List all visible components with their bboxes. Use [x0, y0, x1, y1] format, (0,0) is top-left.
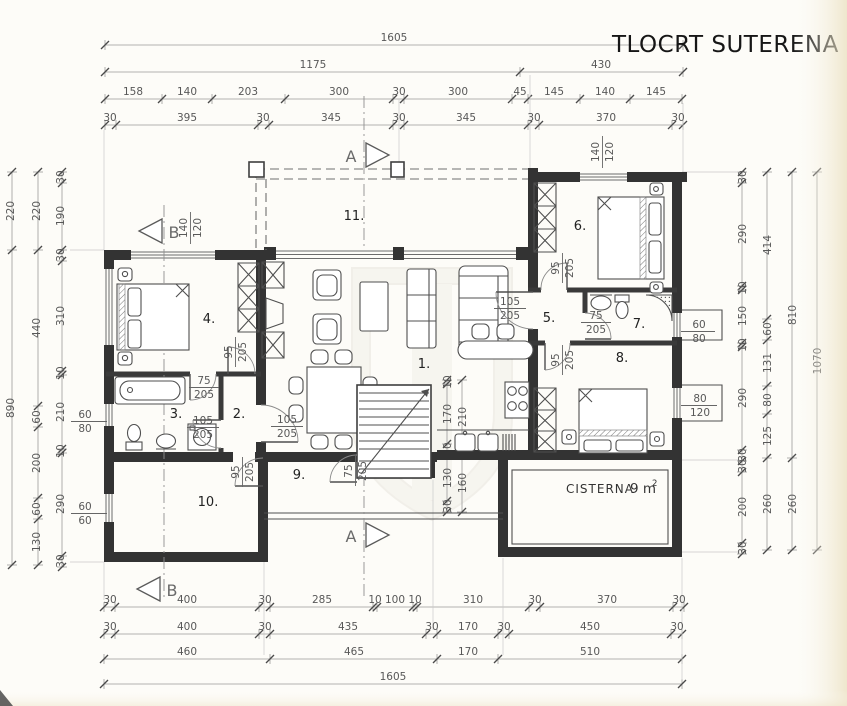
svg-text:400: 400	[177, 621, 197, 633]
svg-text:205: 205	[586, 324, 606, 336]
room-label-6: 6.	[574, 219, 586, 234]
room-label-11: 11.	[344, 209, 365, 224]
svg-text:10: 10	[737, 338, 749, 351]
svg-text:260: 260	[762, 494, 774, 514]
svg-text:10: 10	[408, 594, 421, 606]
svg-text:205: 205	[244, 462, 256, 482]
svg-text:300: 300	[448, 86, 468, 98]
floor-plan-page: 1605 1175 430 158 140 203 300 30 300 45 …	[0, 0, 847, 706]
svg-text:30: 30	[425, 621, 438, 633]
svg-text:30: 30	[737, 170, 749, 183]
svg-text:450: 450	[580, 621, 600, 633]
svg-text:45: 45	[513, 86, 526, 98]
dim-label: 1175	[300, 59, 327, 71]
svg-text:440: 440	[31, 318, 43, 338]
svg-text:370: 370	[597, 594, 617, 606]
svg-text:30: 30	[55, 554, 67, 567]
room-label-1: 1.	[418, 357, 430, 372]
section-a-letter-top: A	[346, 147, 357, 166]
svg-text:170: 170	[458, 646, 478, 658]
bathtub-icon	[115, 377, 185, 404]
svg-text:75: 75	[197, 375, 210, 387]
svg-text:30: 30	[672, 594, 685, 606]
svg-text:60: 60	[78, 409, 91, 421]
svg-text:220: 220	[31, 201, 43, 221]
svg-text:105: 105	[277, 414, 297, 426]
svg-text:205: 205	[277, 428, 297, 440]
svg-text:140: 140	[595, 86, 615, 98]
svg-text:60: 60	[762, 322, 774, 335]
svg-text:30: 30	[258, 594, 271, 606]
svg-text:130: 130	[31, 532, 43, 552]
svg-text:205: 205	[357, 461, 369, 481]
room-label-7: 7.	[633, 317, 645, 332]
section-a-letter-bottom: A	[346, 527, 357, 546]
svg-text:10: 10	[55, 366, 67, 379]
svg-text:125: 125	[762, 426, 774, 446]
svg-text:120: 120	[604, 142, 616, 162]
svg-text:300: 300	[329, 86, 349, 98]
svg-text:160: 160	[457, 473, 469, 493]
room-label-8: 8.	[616, 351, 628, 366]
svg-text:345: 345	[321, 112, 341, 124]
svg-text:30: 30	[392, 112, 405, 124]
svg-text:205: 205	[193, 429, 213, 441]
scan-edge-tint-bottom	[0, 690, 847, 706]
toilet-icon-room7	[615, 295, 629, 319]
svg-text:30: 30	[670, 621, 683, 633]
cisterna-label: CISTERNA 9 m 2	[566, 479, 657, 497]
svg-text:30: 30	[103, 112, 116, 124]
svg-text:30: 30	[528, 594, 541, 606]
dim-label: 430	[591, 59, 611, 71]
svg-text:30: 30	[737, 541, 749, 554]
room-label-5: 5.	[543, 311, 555, 326]
svg-text:10: 10	[737, 281, 749, 294]
svg-text:10: 10	[55, 444, 67, 457]
svg-text:30: 30	[527, 112, 540, 124]
svg-text:140: 140	[177, 86, 197, 98]
svg-text:460: 460	[177, 646, 197, 658]
room-label-9: 9.	[293, 468, 305, 483]
svg-text:30: 30	[392, 86, 405, 98]
dim-label: 1605	[381, 32, 408, 44]
toilet-icon-room3	[126, 425, 142, 451]
kitchen-stove-icon	[505, 382, 529, 418]
svg-text:105: 105	[500, 296, 520, 308]
svg-text:310: 310	[55, 306, 67, 326]
svg-text:80: 80	[762, 393, 774, 406]
svg-text:30: 30	[258, 621, 271, 633]
svg-text:30: 30	[55, 170, 67, 183]
svg-text:190: 190	[55, 206, 67, 226]
bed-icon-room6	[598, 183, 664, 293]
svg-text:30: 30	[103, 621, 116, 633]
svg-text:310: 310	[463, 594, 483, 606]
svg-text:80: 80	[692, 333, 705, 345]
svg-text:60: 60	[31, 502, 43, 515]
svg-text:465: 465	[344, 646, 364, 658]
svg-text:140: 140	[178, 218, 190, 238]
svg-text:95: 95	[223, 345, 235, 358]
svg-text:30: 30	[55, 248, 67, 261]
svg-text:100: 100	[385, 594, 405, 606]
room-label-4: 4.	[203, 312, 215, 327]
svg-text:145: 145	[544, 86, 564, 98]
svg-text:10: 10	[442, 375, 454, 388]
svg-text:220: 220	[5, 201, 17, 221]
room-label-10: 10.	[198, 495, 219, 510]
svg-text:370: 370	[596, 112, 616, 124]
svg-text:95: 95	[550, 261, 562, 274]
svg-text:205: 205	[564, 258, 576, 278]
svg-text:435: 435	[338, 621, 358, 633]
section-b-letter-bottom: B	[167, 581, 178, 600]
svg-text:60: 60	[692, 319, 705, 331]
sofa-icon-small	[407, 269, 436, 348]
svg-text:158: 158	[123, 86, 143, 98]
svg-text:170: 170	[442, 404, 454, 424]
svg-text:140: 140	[590, 142, 602, 162]
svg-text:30: 30	[497, 621, 510, 633]
svg-text:290: 290	[737, 388, 749, 408]
scan-edge-tint-right	[792, 0, 847, 706]
svg-text:145: 145	[646, 86, 666, 98]
svg-text:30: 30	[256, 112, 269, 124]
svg-text:95: 95	[550, 353, 562, 366]
svg-text:150: 150	[737, 306, 749, 326]
floor-plan-drawing: 1605 1175 430 158 140 203 300 30 300 45 …	[0, 0, 847, 706]
coffee-table-icon	[360, 282, 388, 331]
svg-text:205: 205	[564, 350, 576, 370]
svg-text:105: 105	[193, 415, 213, 427]
svg-text:131: 131	[762, 353, 774, 373]
svg-text:120: 120	[192, 218, 204, 238]
svg-text:210: 210	[457, 407, 469, 427]
svg-text:60: 60	[78, 501, 91, 513]
svg-text:2: 2	[652, 479, 657, 489]
svg-text:75: 75	[589, 310, 602, 322]
svg-text:30: 30	[103, 594, 116, 606]
svg-text:345: 345	[456, 112, 476, 124]
svg-text:130: 130	[442, 468, 454, 488]
svg-text:30: 30	[442, 499, 454, 512]
svg-text:75: 75	[343, 464, 355, 477]
svg-text:210: 210	[55, 402, 67, 422]
svg-text:414: 414	[762, 235, 774, 255]
svg-text:890: 890	[5, 398, 17, 418]
svg-text:205: 205	[194, 389, 214, 401]
svg-text:95: 95	[230, 465, 242, 478]
svg-text:400: 400	[177, 594, 197, 606]
svg-text:10: 10	[368, 594, 381, 606]
svg-text:200: 200	[31, 453, 43, 473]
svg-text:60: 60	[31, 410, 43, 423]
svg-text:200: 200	[737, 497, 749, 517]
svg-text:30: 30	[737, 459, 749, 472]
svg-text:CISTERNA: CISTERNA	[566, 482, 634, 496]
svg-text:30: 30	[671, 112, 684, 124]
svg-text:120: 120	[690, 407, 710, 419]
svg-text:395: 395	[177, 112, 197, 124]
svg-text:205: 205	[500, 310, 520, 322]
svg-text:285: 285	[312, 594, 332, 606]
svg-text:60: 60	[78, 515, 91, 527]
svg-text:290: 290	[737, 224, 749, 244]
room-label-2: 2.	[233, 407, 245, 422]
svg-text:205: 205	[237, 342, 249, 362]
svg-text:203: 203	[238, 86, 258, 98]
svg-text:80: 80	[693, 393, 706, 405]
svg-text:80: 80	[78, 423, 91, 435]
svg-text:290: 290	[55, 494, 67, 514]
svg-text:170: 170	[458, 621, 478, 633]
svg-text:510: 510	[580, 646, 600, 658]
room-label-3: 3.	[170, 407, 182, 422]
svg-text:1605: 1605	[380, 671, 407, 683]
